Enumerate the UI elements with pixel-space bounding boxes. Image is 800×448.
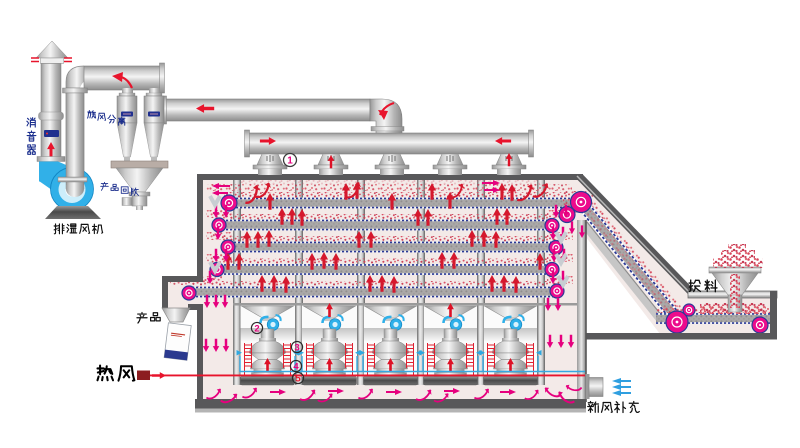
svg-text:5: 5: [295, 373, 301, 384]
svg-text:1: 1: [287, 156, 293, 167]
svg-text:3: 3: [294, 342, 299, 353]
svg-text:2: 2: [254, 323, 259, 334]
svg-text:4: 4: [293, 361, 299, 372]
